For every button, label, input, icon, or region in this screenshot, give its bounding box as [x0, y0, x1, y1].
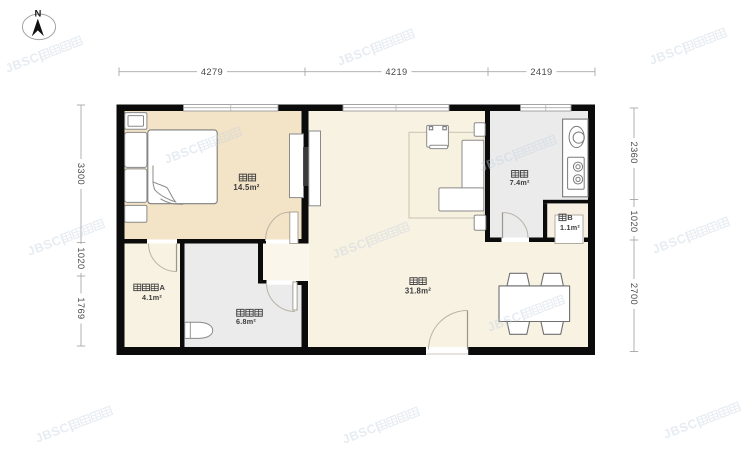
svg-text:14.5m²: 14.5m² [233, 183, 259, 192]
svg-text:2700: 2700 [629, 283, 639, 305]
svg-text:N: N [34, 9, 41, 20]
svg-text:4.1m²: 4.1m² [142, 293, 162, 302]
svg-text:4279: 4279 [201, 67, 223, 77]
svg-text:A: A [159, 283, 165, 292]
svg-text:31.8m²: 31.8m² [405, 287, 431, 296]
svg-text:6.8m²: 6.8m² [236, 317, 256, 326]
svg-text:1020: 1020 [629, 210, 639, 232]
svg-text:2360: 2360 [629, 142, 639, 164]
svg-text:1769: 1769 [76, 297, 86, 319]
svg-text:B: B [567, 213, 573, 222]
svg-text:1020: 1020 [76, 247, 86, 269]
svg-text:7.4m²: 7.4m² [510, 178, 530, 187]
svg-text:2419: 2419 [530, 67, 552, 77]
svg-text:4219: 4219 [385, 67, 407, 77]
svg-text:1.1m²: 1.1m² [560, 223, 580, 232]
svg-text:3300: 3300 [76, 163, 86, 185]
